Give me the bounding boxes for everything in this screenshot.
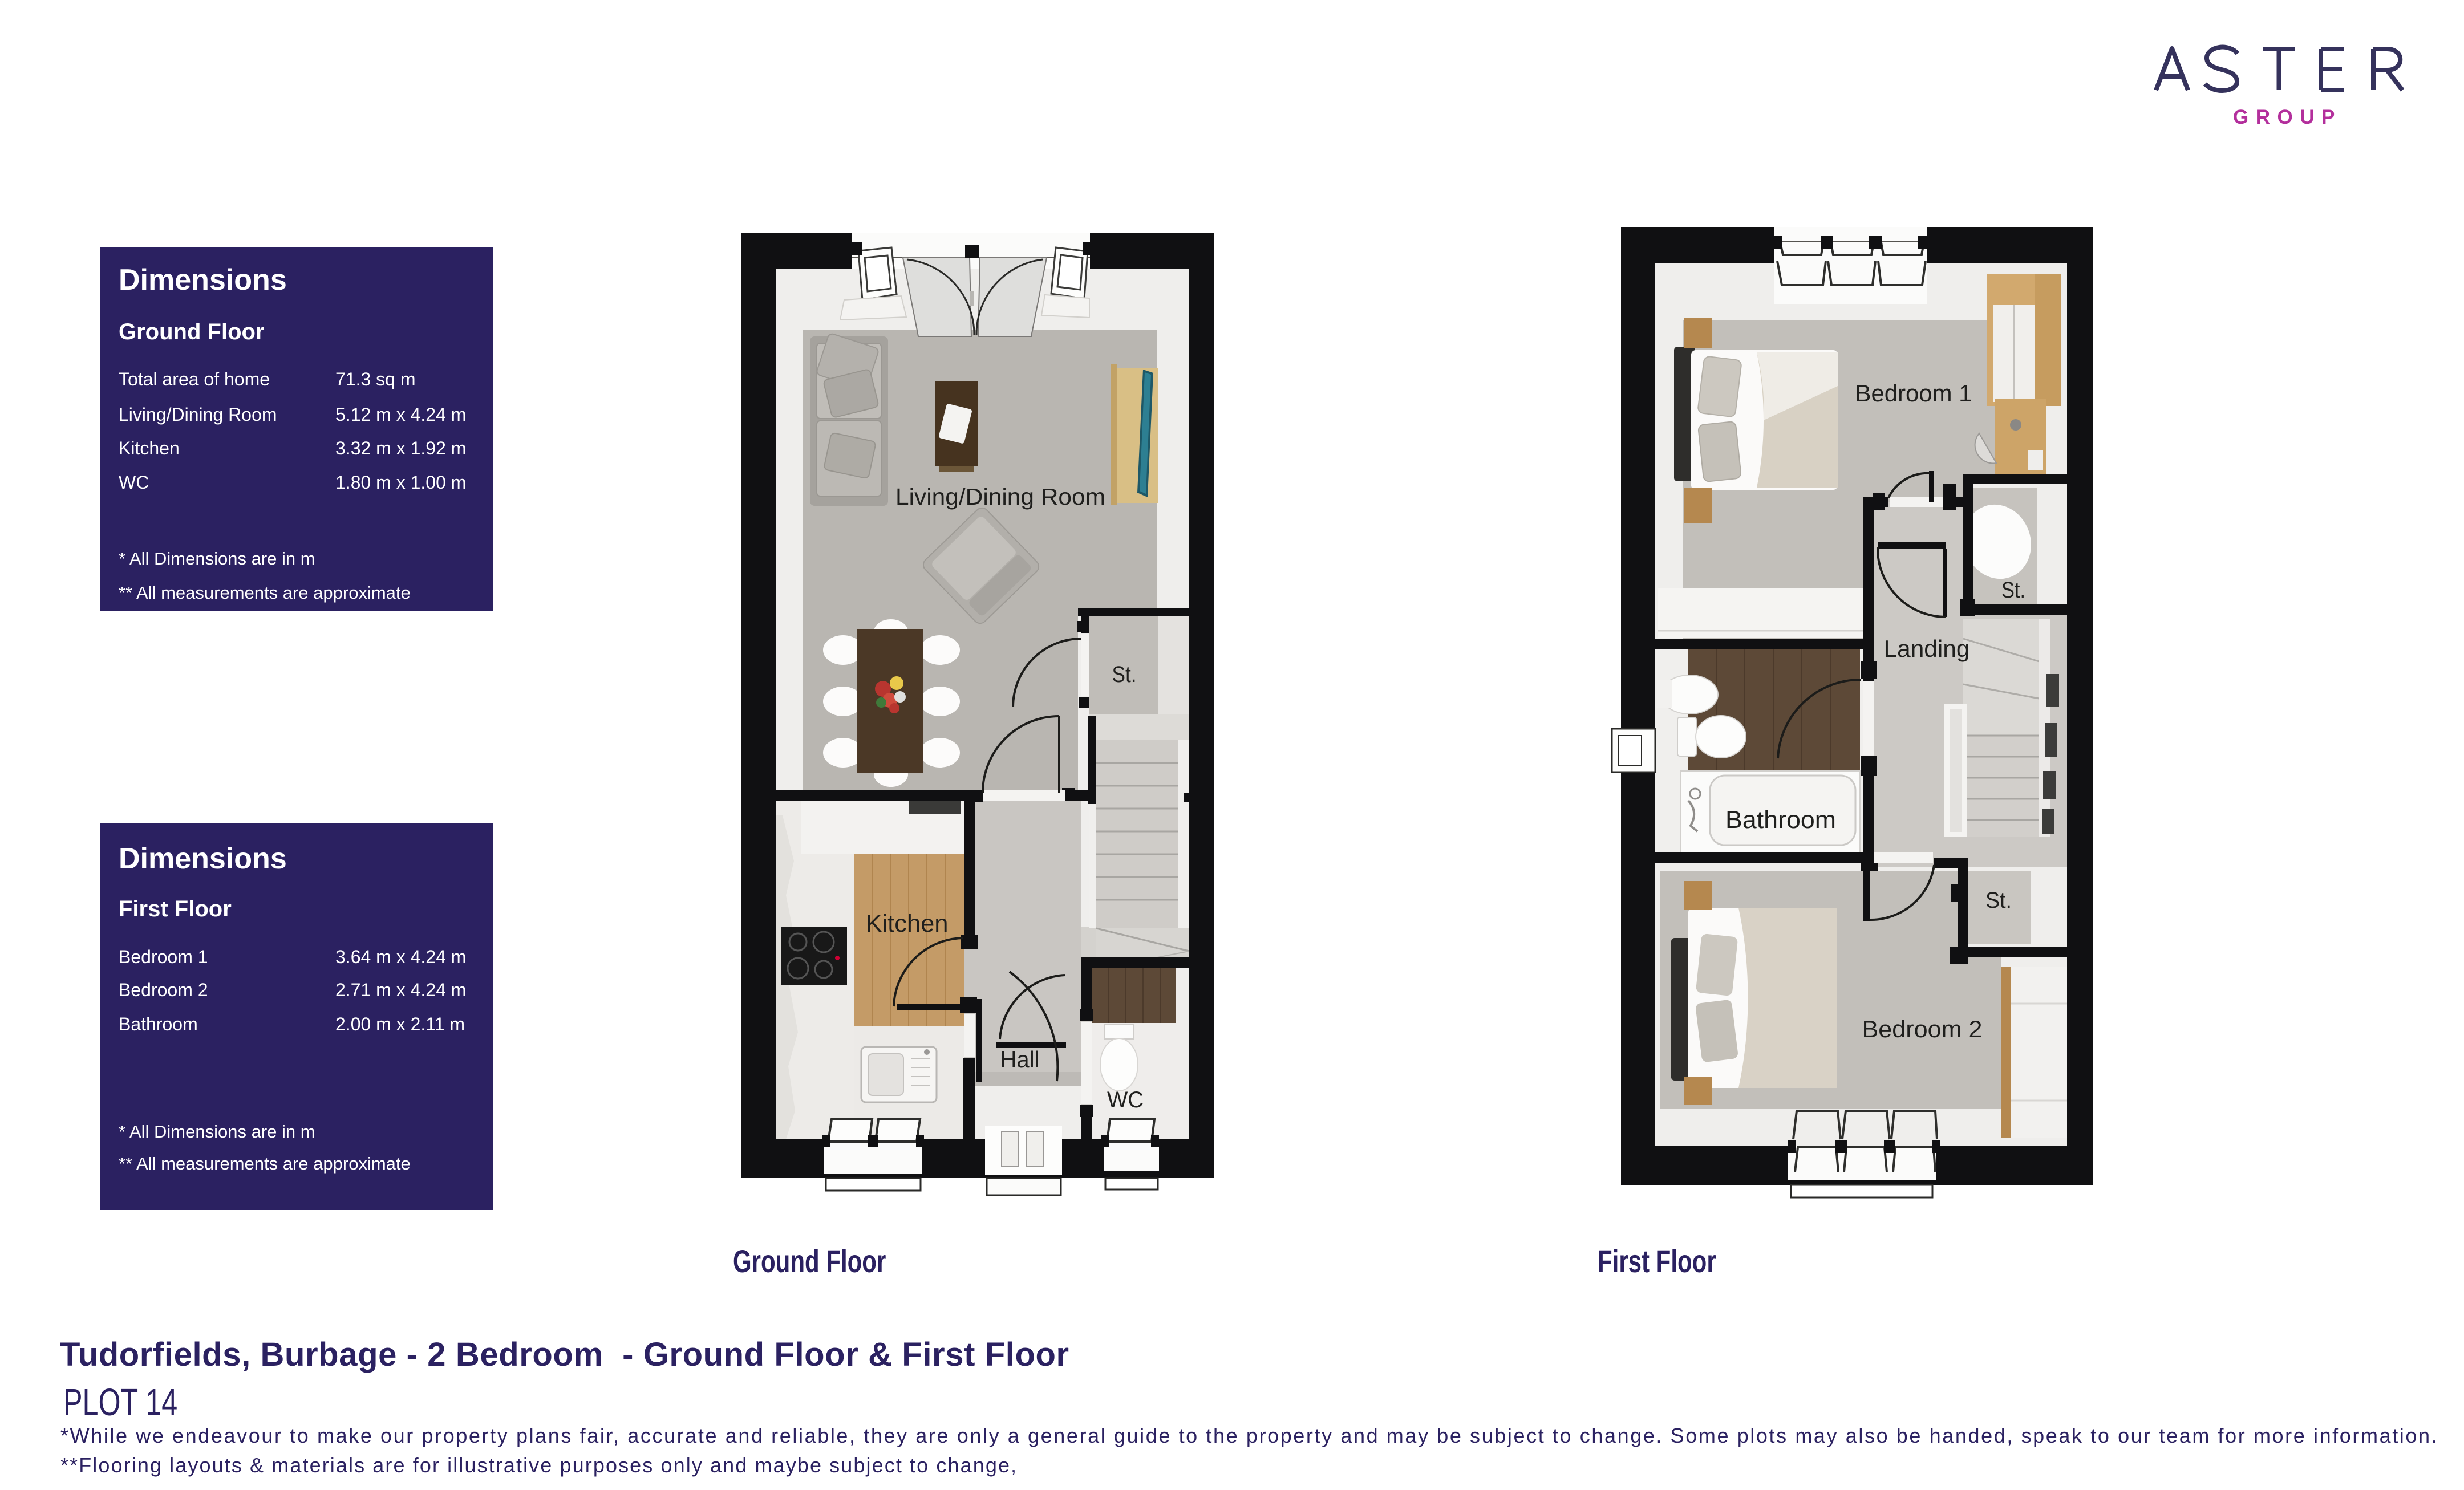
- svg-text:Bedroom 1: Bedroom 1: [1855, 380, 1972, 407]
- svg-text:St.: St.: [2001, 578, 2025, 603]
- svg-text:WC: WC: [1107, 1087, 1144, 1113]
- svg-text:Living/Dining Room: Living/Dining Room: [895, 484, 1105, 510]
- svg-text:Bedroom 2: Bedroom 2: [1862, 1016, 1983, 1042]
- svg-text:St.: St.: [1112, 662, 1137, 687]
- svg-text:Landing: Landing: [1884, 635, 1970, 662]
- svg-text:Bathroom: Bathroom: [1725, 806, 1836, 834]
- svg-text:Kitchen: Kitchen: [866, 910, 949, 937]
- svg-text:St.: St.: [1985, 888, 2012, 913]
- svg-text:Hall: Hall: [1000, 1046, 1040, 1073]
